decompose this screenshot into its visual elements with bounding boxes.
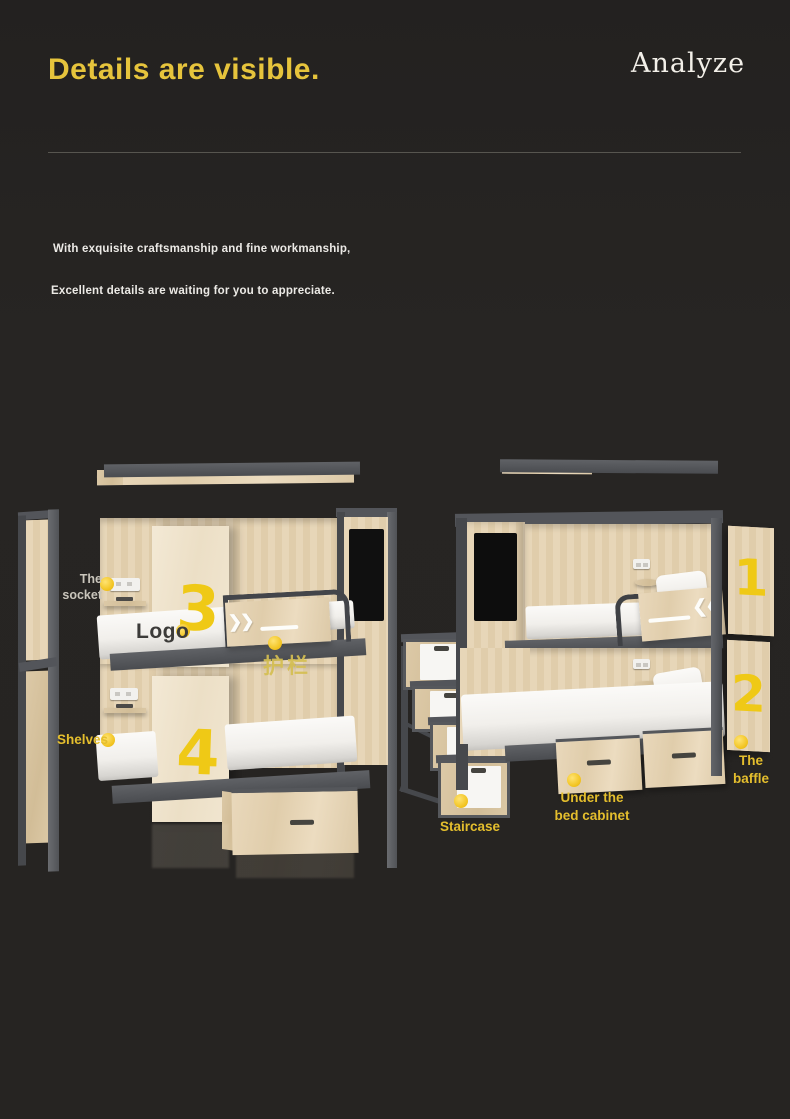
socket-outlet xyxy=(636,563,641,567)
drawer-handle xyxy=(290,820,314,825)
left-bed-under-drawer xyxy=(231,787,358,855)
left-side-end-frame xyxy=(14,508,62,874)
socket-outlet xyxy=(127,582,132,586)
callout-label-socket: The socket xyxy=(40,571,102,604)
baffle-panel-upper: 1 xyxy=(728,526,774,636)
product-detail-page: Details are visible. Analyze With exquis… xyxy=(0,0,790,1119)
right-bed-head-window xyxy=(474,533,517,621)
number-2: 2 xyxy=(727,668,770,720)
drawer-handle xyxy=(587,759,611,765)
callout-dot-socket xyxy=(100,577,114,591)
right-bed-top-shelf-bar xyxy=(500,459,718,474)
callout-label-baffle: The baffle xyxy=(722,752,780,787)
guardrail-slot xyxy=(648,615,690,623)
callout-dot-guardrail xyxy=(268,636,282,650)
baffle-panel-lower: 2 xyxy=(727,640,770,752)
socket-outlet xyxy=(636,663,641,667)
socket-outlet xyxy=(116,582,121,586)
floor-reflection xyxy=(236,852,354,878)
right-bed-upper-socket xyxy=(633,559,650,569)
step-handle-1 xyxy=(434,646,449,651)
left-bed-lower-shelf xyxy=(104,708,146,713)
socket-outlet xyxy=(115,692,120,696)
socket-outlet xyxy=(643,663,648,667)
callout-label-staircase: Staircase xyxy=(434,818,506,836)
callout-label-logo: Logo xyxy=(136,618,189,645)
left-bed-lower-socket xyxy=(110,688,138,700)
socket-outlet xyxy=(126,692,131,696)
end-frame-left-post xyxy=(18,515,26,865)
callout-label-under-bed: Under the bed cabinet xyxy=(533,789,651,824)
step-handle-4 xyxy=(471,768,486,773)
callout-dot-under-bed xyxy=(567,773,581,787)
left-bed-upper-shelf xyxy=(104,601,146,606)
socket-outlet xyxy=(643,563,648,567)
right-bed-lower-socket xyxy=(633,659,650,669)
right-bed-foot-leg xyxy=(458,744,468,790)
step-box-4 xyxy=(438,760,510,818)
callout-label-shelves: Shelves xyxy=(57,731,108,749)
left-bed-foot-window xyxy=(349,529,384,621)
callout-label-guardrail: 护栏 xyxy=(263,653,311,680)
end-frame-right-post xyxy=(48,509,59,871)
end-frame-lower-panel xyxy=(26,671,48,844)
chevron-right-icons: ❯❯ xyxy=(227,611,253,632)
left-bed-top-shelf-bar xyxy=(104,462,360,478)
callout-dot-baffle xyxy=(734,735,748,749)
number-1: 1 xyxy=(728,552,774,604)
left-bed-upper-socket xyxy=(110,578,140,591)
right-bed-far-post xyxy=(711,518,722,776)
guardrail-slot xyxy=(260,625,298,631)
left-bed-lower-mattress-foot xyxy=(225,716,358,771)
number-4: 4 xyxy=(173,721,223,785)
product-render-scene: ❯❯ xyxy=(0,0,790,1119)
drawer-handle xyxy=(672,752,696,758)
callout-dot-staircase xyxy=(454,794,468,808)
floor-reflection xyxy=(152,824,229,868)
